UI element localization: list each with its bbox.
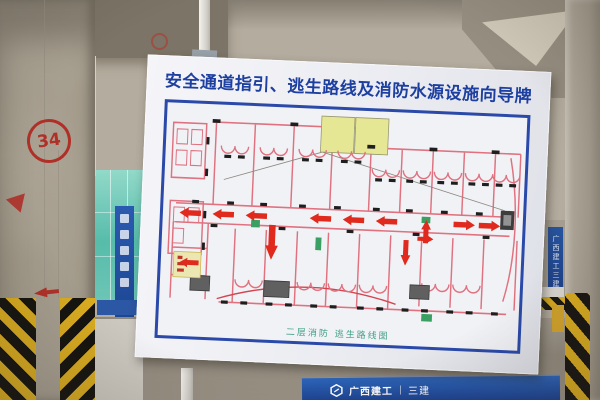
banner-glyph — [120, 278, 129, 287]
hazard-stripe — [0, 298, 36, 400]
construction-site-photo: 广西建工三建 广西建工 | 三建 34 安全通道指引、逃生路线及消防水源设施向导… — [0, 0, 600, 400]
company-brand: 广西建工 — [349, 382, 393, 397]
left-pillar: 34 — [0, 0, 95, 400]
map-frame: 二层消防 逃生路线图 — [154, 99, 530, 354]
floor-plan — [161, 107, 524, 329]
balcony-shapes — [215, 146, 520, 299]
hazard-stripe — [565, 293, 590, 400]
stair-boxes — [190, 275, 430, 303]
vertical-banner-text: 广西建工三建 — [552, 235, 559, 289]
company-banner: 广西建工 | 三建 — [302, 375, 560, 400]
column-number-badge: 34 — [24, 116, 74, 166]
distant-blue-sign — [97, 300, 141, 315]
brand-divider: | — [399, 385, 402, 395]
column-number: 34 — [36, 129, 62, 152]
hazard-stripe — [60, 298, 95, 400]
yellow-post — [552, 305, 564, 332]
hexagon-logo — [330, 384, 343, 397]
red-triangle-mark — [6, 193, 30, 215]
company-division: 三建 — [408, 382, 430, 397]
banner-glyph — [120, 246, 129, 255]
banner-glyph — [120, 230, 129, 239]
exit-box — [500, 211, 514, 231]
right-pillar — [565, 0, 600, 400]
crack-line — [58, 150, 59, 298]
legend-panels — [320, 116, 389, 155]
safety-sign-board: 安全通道指引、逃生路线及消防水源设施向导牌 — [135, 54, 552, 374]
glass-mullion — [110, 170, 111, 300]
wall-ring-mark — [151, 33, 168, 50]
red-arrow-mark — [34, 287, 48, 298]
banner-glyph — [120, 262, 129, 271]
sign-pole-bottom — [181, 368, 193, 400]
banner-glyph — [120, 214, 129, 223]
